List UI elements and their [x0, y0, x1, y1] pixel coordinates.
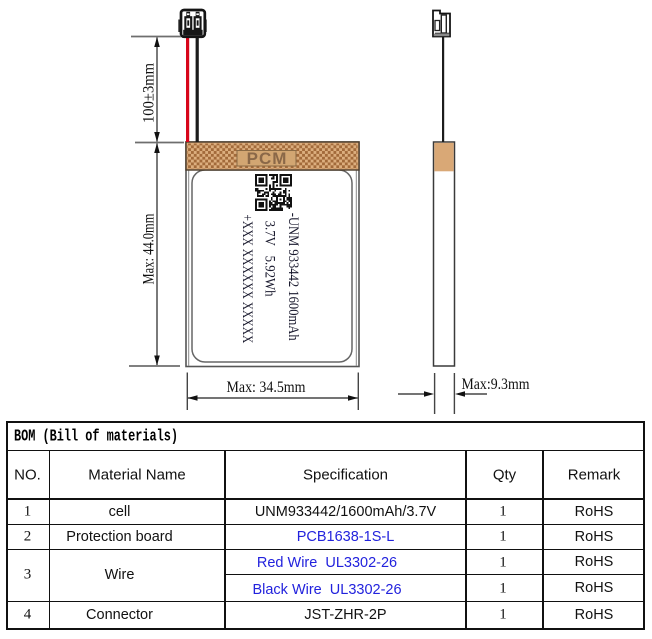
svg-text:100±3mm: 100±3mm: [141, 63, 158, 123]
svg-text:+XXX XXXXXX XXXXX: +XXX XXXXXX XXXXX: [239, 214, 255, 343]
svg-text:-UNM 933442 1600mAh: -UNM 933442 1600mAh: [285, 213, 301, 342]
svg-text:3.7V 5.92Wh: 3.7V 5.92Wh: [262, 221, 278, 298]
svg-text:Max:9.3mm: Max:9.3mm: [462, 376, 530, 393]
svg-text:Max: 34.5mm: Max: 34.5mm: [227, 379, 306, 396]
svg-text:PCM: PCM: [247, 149, 288, 168]
svg-text:Max: 44.0mm: Max: 44.0mm: [141, 214, 158, 285]
